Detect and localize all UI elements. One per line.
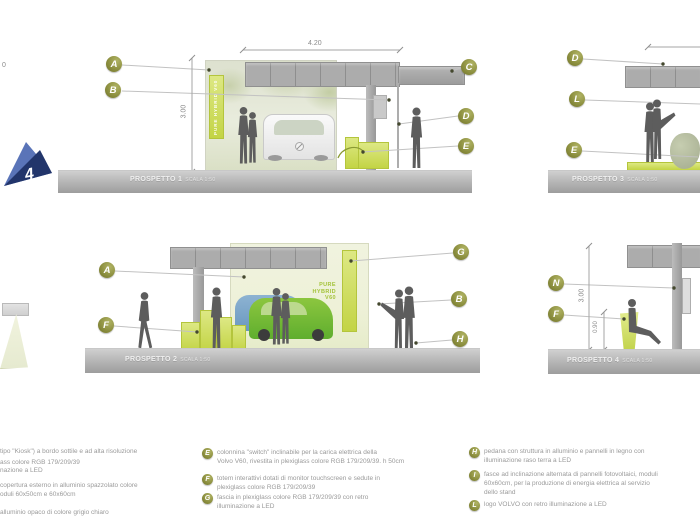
leader-e2-g [351, 253, 453, 261]
legend-letter-l: L [469, 500, 480, 511]
person-silhouette [648, 98, 678, 162]
legend-entry-line: Volvo V60, rivestita in plexiglass color… [217, 458, 404, 467]
legend-letter-e: E [202, 448, 213, 459]
legend-left-line: copertura esterno in alluminio spazzolat… [0, 482, 138, 491]
elev3-title: PROSPETTO 3SCALA 1:50 [572, 176, 657, 183]
legend-entry-line: logo VOLVO con retro illuminazione a LED [484, 501, 607, 510]
dim-width-elev1: 4.20 [308, 40, 322, 47]
legend-entry-line: colonnina "switch" inclinabile per la ca… [217, 449, 377, 458]
callout-f: F [548, 306, 564, 322]
leader-e2-a [115, 271, 244, 277]
legend-entry-line: illuminazione raso terra a LED [484, 457, 571, 466]
leader-e2-h [416, 340, 452, 343]
callout-l: L [569, 91, 585, 107]
callout-a: A [99, 262, 115, 278]
person-silhouette [406, 107, 427, 170]
elev1-title: PROSPETTO 1SCALA 1:50 [130, 176, 215, 183]
leader-e4-f [564, 315, 624, 319]
elev1-title-text: PROSPETTO 1 [130, 176, 182, 183]
person-silhouette [621, 298, 663, 348]
elev2-title: PROSPETTO 2SCALA 1:50 [125, 356, 210, 363]
elev1-scale: SCALA 1:50 [185, 177, 215, 183]
callout-n: N [548, 275, 564, 291]
elev2-title-text: PROSPETTO 2 [125, 356, 177, 363]
callout-h: H [452, 331, 468, 347]
callout-d: D [458, 108, 474, 124]
legend-entry-line: plexiglass colore RGB 179/209/39 [217, 484, 315, 493]
leader-e1-b [122, 91, 389, 100]
legend-entry-line: fasce ad inclinazione alternata di panne… [484, 471, 658, 480]
callout-g: G [453, 244, 469, 260]
dim-seat-elev4: 0.90 [593, 321, 599, 333]
callout-d: D [567, 50, 583, 66]
legend-letter-g: G [202, 493, 213, 504]
callout-a: A [106, 56, 122, 72]
person-silhouette [244, 107, 261, 169]
dim-height-elev4: 3.00 [578, 289, 585, 303]
person-silhouette [398, 286, 420, 352]
charging-cable [338, 147, 363, 158]
callout-f: F [98, 317, 114, 333]
legend-letter-h: H [469, 447, 480, 458]
legend-left-line: alluminio opaco di colore grigio chiaro [0, 509, 109, 518]
legend-letter-i: I [469, 470, 480, 481]
legend-entry-line: 60x60cm, per la produzione di energia el… [484, 480, 650, 489]
elev4-title-text: PROSPETTO 4 [567, 357, 619, 364]
elev1-ground-bar [58, 170, 472, 193]
elev3-scale: SCALA 1:50 [627, 177, 657, 183]
legend-entry-line: pedana con struttura in alluminio e pann… [484, 448, 644, 457]
legend-left-line: tipo "Kiosk") a bordo sottile e ad alta … [0, 448, 137, 457]
person-silhouette [132, 291, 157, 352]
person-silhouette [277, 289, 294, 349]
legend-letter-f: F [202, 474, 213, 485]
leader-e1-a [122, 65, 209, 70]
legend-entry-line: dello stand [484, 489, 515, 498]
callout-b: B [451, 291, 467, 307]
elev4-scale: SCALA 1:50 [622, 358, 652, 364]
legend-left-line: nazione a LED [0, 467, 43, 476]
elev3-title-text: PROSPETTO 3 [572, 176, 624, 183]
dimension-ticks [189, 44, 651, 353]
presentation-board: 0 4 PURE HYBRID V60 PURE HYBRID V60 [0, 0, 700, 525]
dim-height-elev1: 3.00 [180, 105, 187, 119]
legend-entry-line: totem interattivi dotati di monitor touc… [217, 475, 380, 484]
legend-entry-line: illuminazione a LED [217, 503, 274, 512]
callout-e: E [566, 142, 582, 158]
leader-e3-d [583, 59, 663, 64]
callout-b: B [105, 82, 121, 98]
legend-left-line: oduli 60x50cm e 60x60cm [0, 491, 76, 500]
legend-entry-line: fascia in plexiglass colore RGB 179/209/… [217, 494, 368, 503]
elev4-title: PROSPETTO 4SCALA 1:50 [567, 357, 652, 364]
elev2-scale: SCALA 1:50 [180, 357, 210, 363]
callout-e: E [458, 138, 474, 154]
person-silhouette [206, 287, 227, 350]
callout-c: C [461, 59, 477, 75]
